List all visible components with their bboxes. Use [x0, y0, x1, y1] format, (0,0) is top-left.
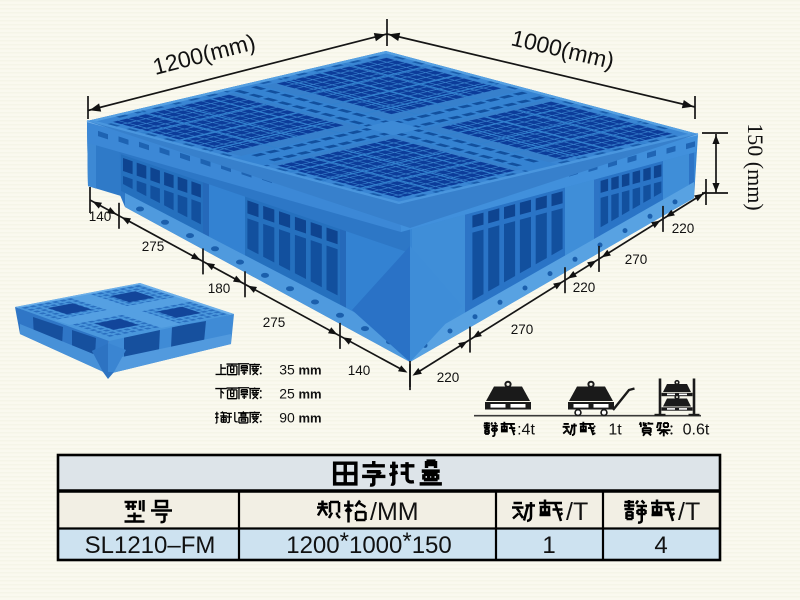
svg-text:mm: mm: [298, 387, 321, 402]
svg-text:：: ：: [668, 422, 682, 438]
svg-text:35: 35: [279, 362, 295, 378]
svg-text:270: 270: [511, 322, 534, 337]
svg-text::4t: :4t: [517, 422, 535, 439]
svg-text:：: ：: [591, 422, 605, 438]
svg-text:：: ：: [257, 387, 270, 402]
svg-text:1t: 1t: [608, 422, 622, 439]
svg-text:275: 275: [142, 239, 165, 254]
svg-text:4: 4: [654, 532, 667, 559]
svg-text:180: 180: [208, 281, 231, 296]
svg-text:1200*1000*150: 1200*1000*150: [286, 528, 452, 559]
svg-text:/T: /T: [566, 498, 588, 526]
svg-text:：: ：: [257, 363, 270, 378]
svg-text:220: 220: [573, 280, 596, 295]
svg-text:mm: mm: [298, 411, 321, 426]
svg-text:1: 1: [542, 532, 555, 559]
svg-text:220: 220: [437, 370, 460, 385]
svg-text:90: 90: [279, 410, 295, 426]
svg-text:270: 270: [625, 252, 648, 267]
svg-text:140: 140: [348, 363, 371, 378]
svg-text:140: 140: [89, 209, 112, 224]
svg-text:150 (mm): 150 (mm): [743, 123, 768, 210]
svg-text:275: 275: [263, 315, 286, 330]
svg-text:0.6t: 0.6t: [683, 422, 710, 439]
svg-text:/T: /T: [678, 498, 700, 526]
svg-text:220: 220: [672, 221, 695, 236]
svg-text:mm: mm: [298, 363, 321, 378]
svg-text:/MM: /MM: [370, 498, 419, 526]
svg-text:：: ：: [257, 411, 270, 426]
svg-text:25: 25: [279, 386, 295, 402]
svg-text:1200(mm): 1200(mm): [150, 29, 258, 80]
svg-text:SL1210–FM: SL1210–FM: [85, 532, 216, 559]
